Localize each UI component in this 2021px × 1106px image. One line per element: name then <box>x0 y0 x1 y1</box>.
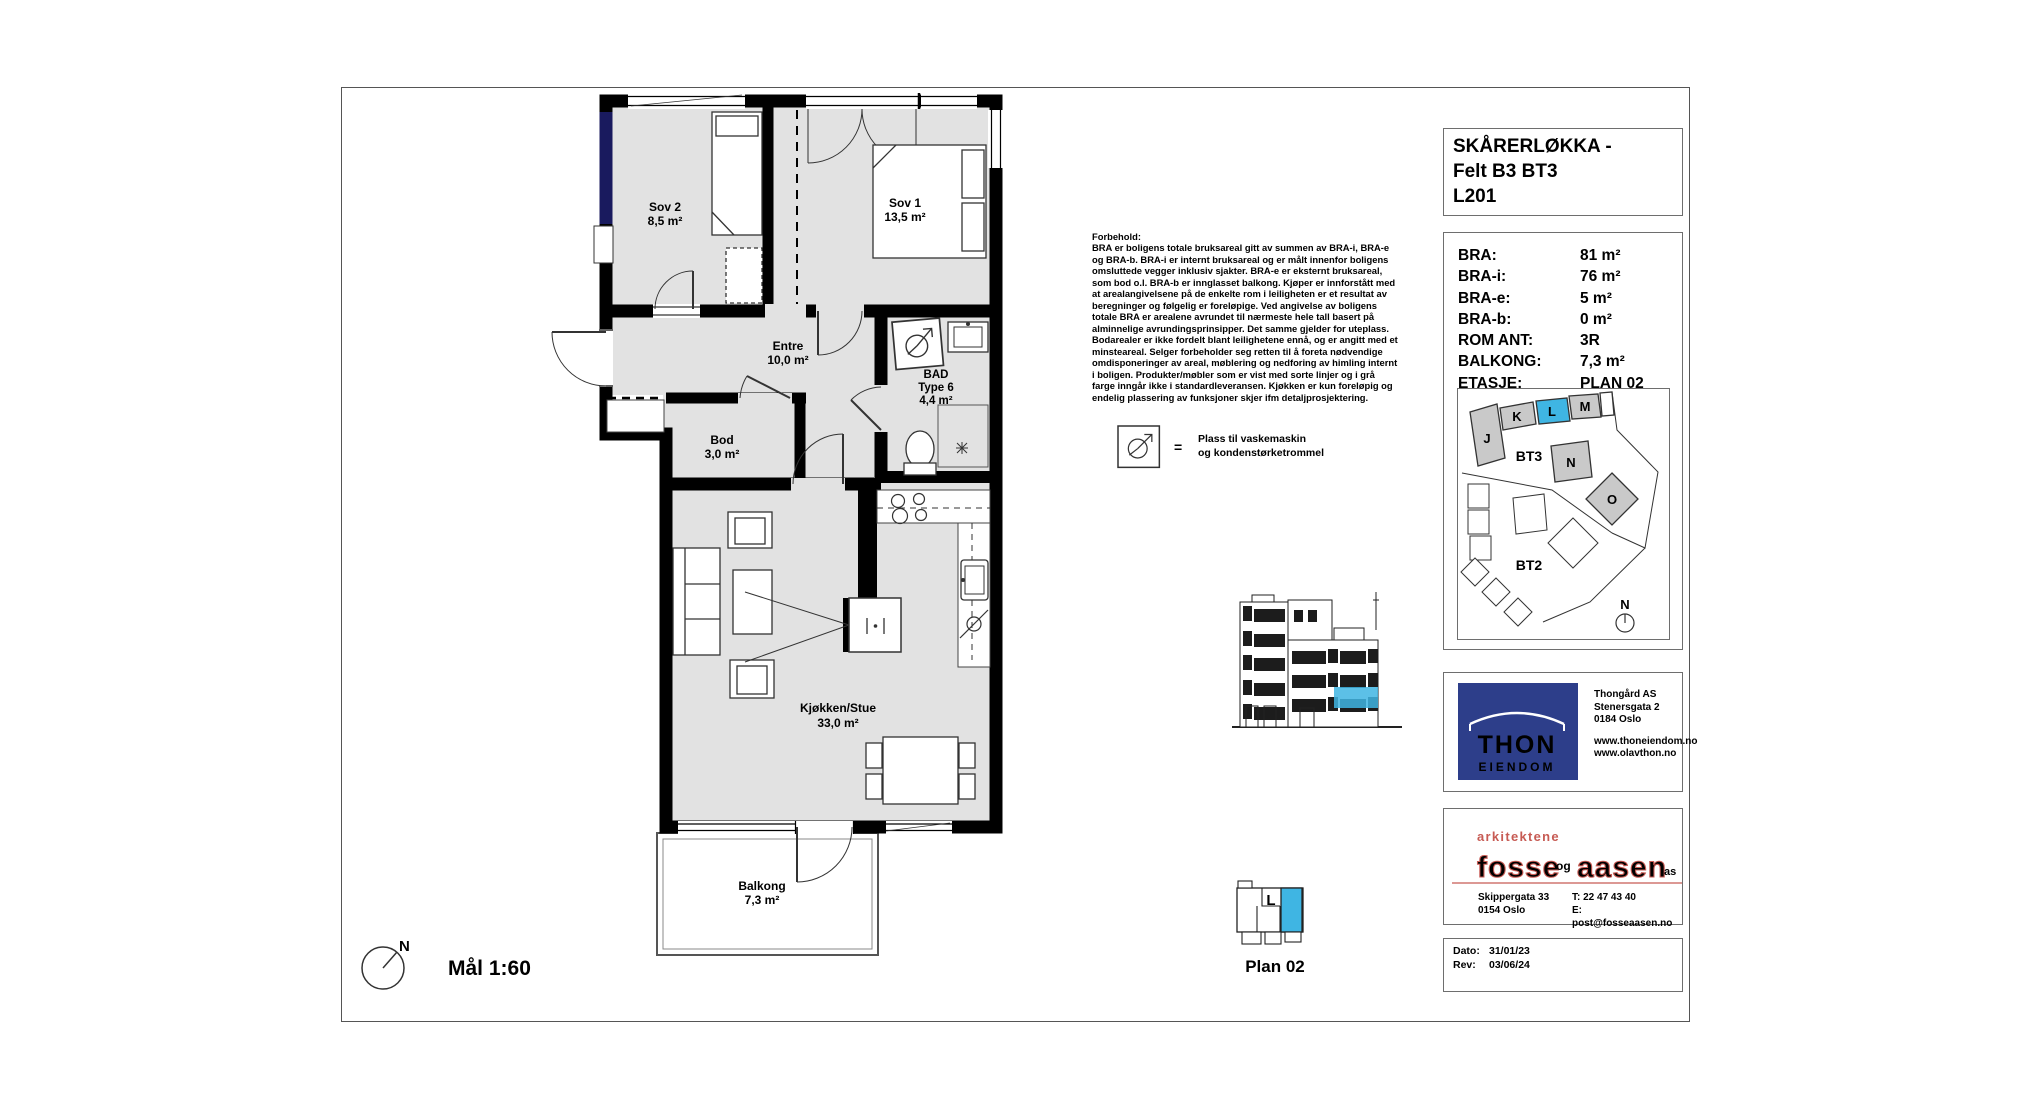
disclaimer-body: BRA er boligens totale bruksareal gitt a… <box>1092 242 1400 403</box>
table-row: BRA-e:5 m² <box>1458 288 1644 309</box>
rev-row: Rev:03/06/24 <box>1453 959 1682 973</box>
architect-tagline: arkitektene <box>1477 829 1560 844</box>
developer-url: www.olavthon.no <box>1594 748 1698 761</box>
table-row: BRA-b:0 m² <box>1458 309 1644 330</box>
site-plan-box <box>1457 388 1670 640</box>
thon-eiendom-logo <box>1458 683 1578 780</box>
table-row: ROM ANT:3R <box>1458 330 1644 351</box>
area-info-table: BRA:81 m² BRA-i:76 m² BRA-e:5 m² BRA-b:0… <box>1458 245 1644 394</box>
architect-address: Skippergata 33 0154 Oslo <box>1478 891 1549 917</box>
project-title-line1: SKÅRERLØKKA - <box>1453 134 1673 159</box>
plan-caption: Plan 02 <box>1228 957 1322 977</box>
project-title-line2: Felt B3 BT3 <box>1453 159 1673 184</box>
title-block: SKÅRERLØKKA - Felt B3 BT3 L201 <box>1443 128 1683 216</box>
table-row: BALKONG:7,3 m² <box>1458 351 1644 372</box>
disclaimer-heading: Forbehold: <box>1092 231 1400 242</box>
disclaimer-text: Forbehold: BRA er boligens totale bruksa… <box>1092 231 1400 403</box>
architect-contact: T: 22 47 43 40 E: post@fosseaasen.no <box>1572 891 1682 930</box>
developer-box: Thongård AS Stenersgata 2 0184 Oslo www.… <box>1443 672 1683 792</box>
revision-box: Dato:31/01/23 Rev:03/06/24 <box>1443 938 1683 992</box>
date-row: Dato:31/01/23 <box>1453 945 1682 959</box>
architect-box: arkitektene Skippergata 33 0154 Oslo T: … <box>1443 808 1683 925</box>
scale-label: Mål 1:60 <box>448 957 531 981</box>
table-row: BRA-i:76 m² <box>1458 266 1644 287</box>
developer-url: www.thoneiendom.no <box>1594 736 1698 749</box>
table-row: BRA:81 m² <box>1458 245 1644 266</box>
developer-address: Thongård AS Stenersgata 2 0184 Oslo www.… <box>1594 689 1698 761</box>
unit-number: L201 <box>1453 184 1673 209</box>
